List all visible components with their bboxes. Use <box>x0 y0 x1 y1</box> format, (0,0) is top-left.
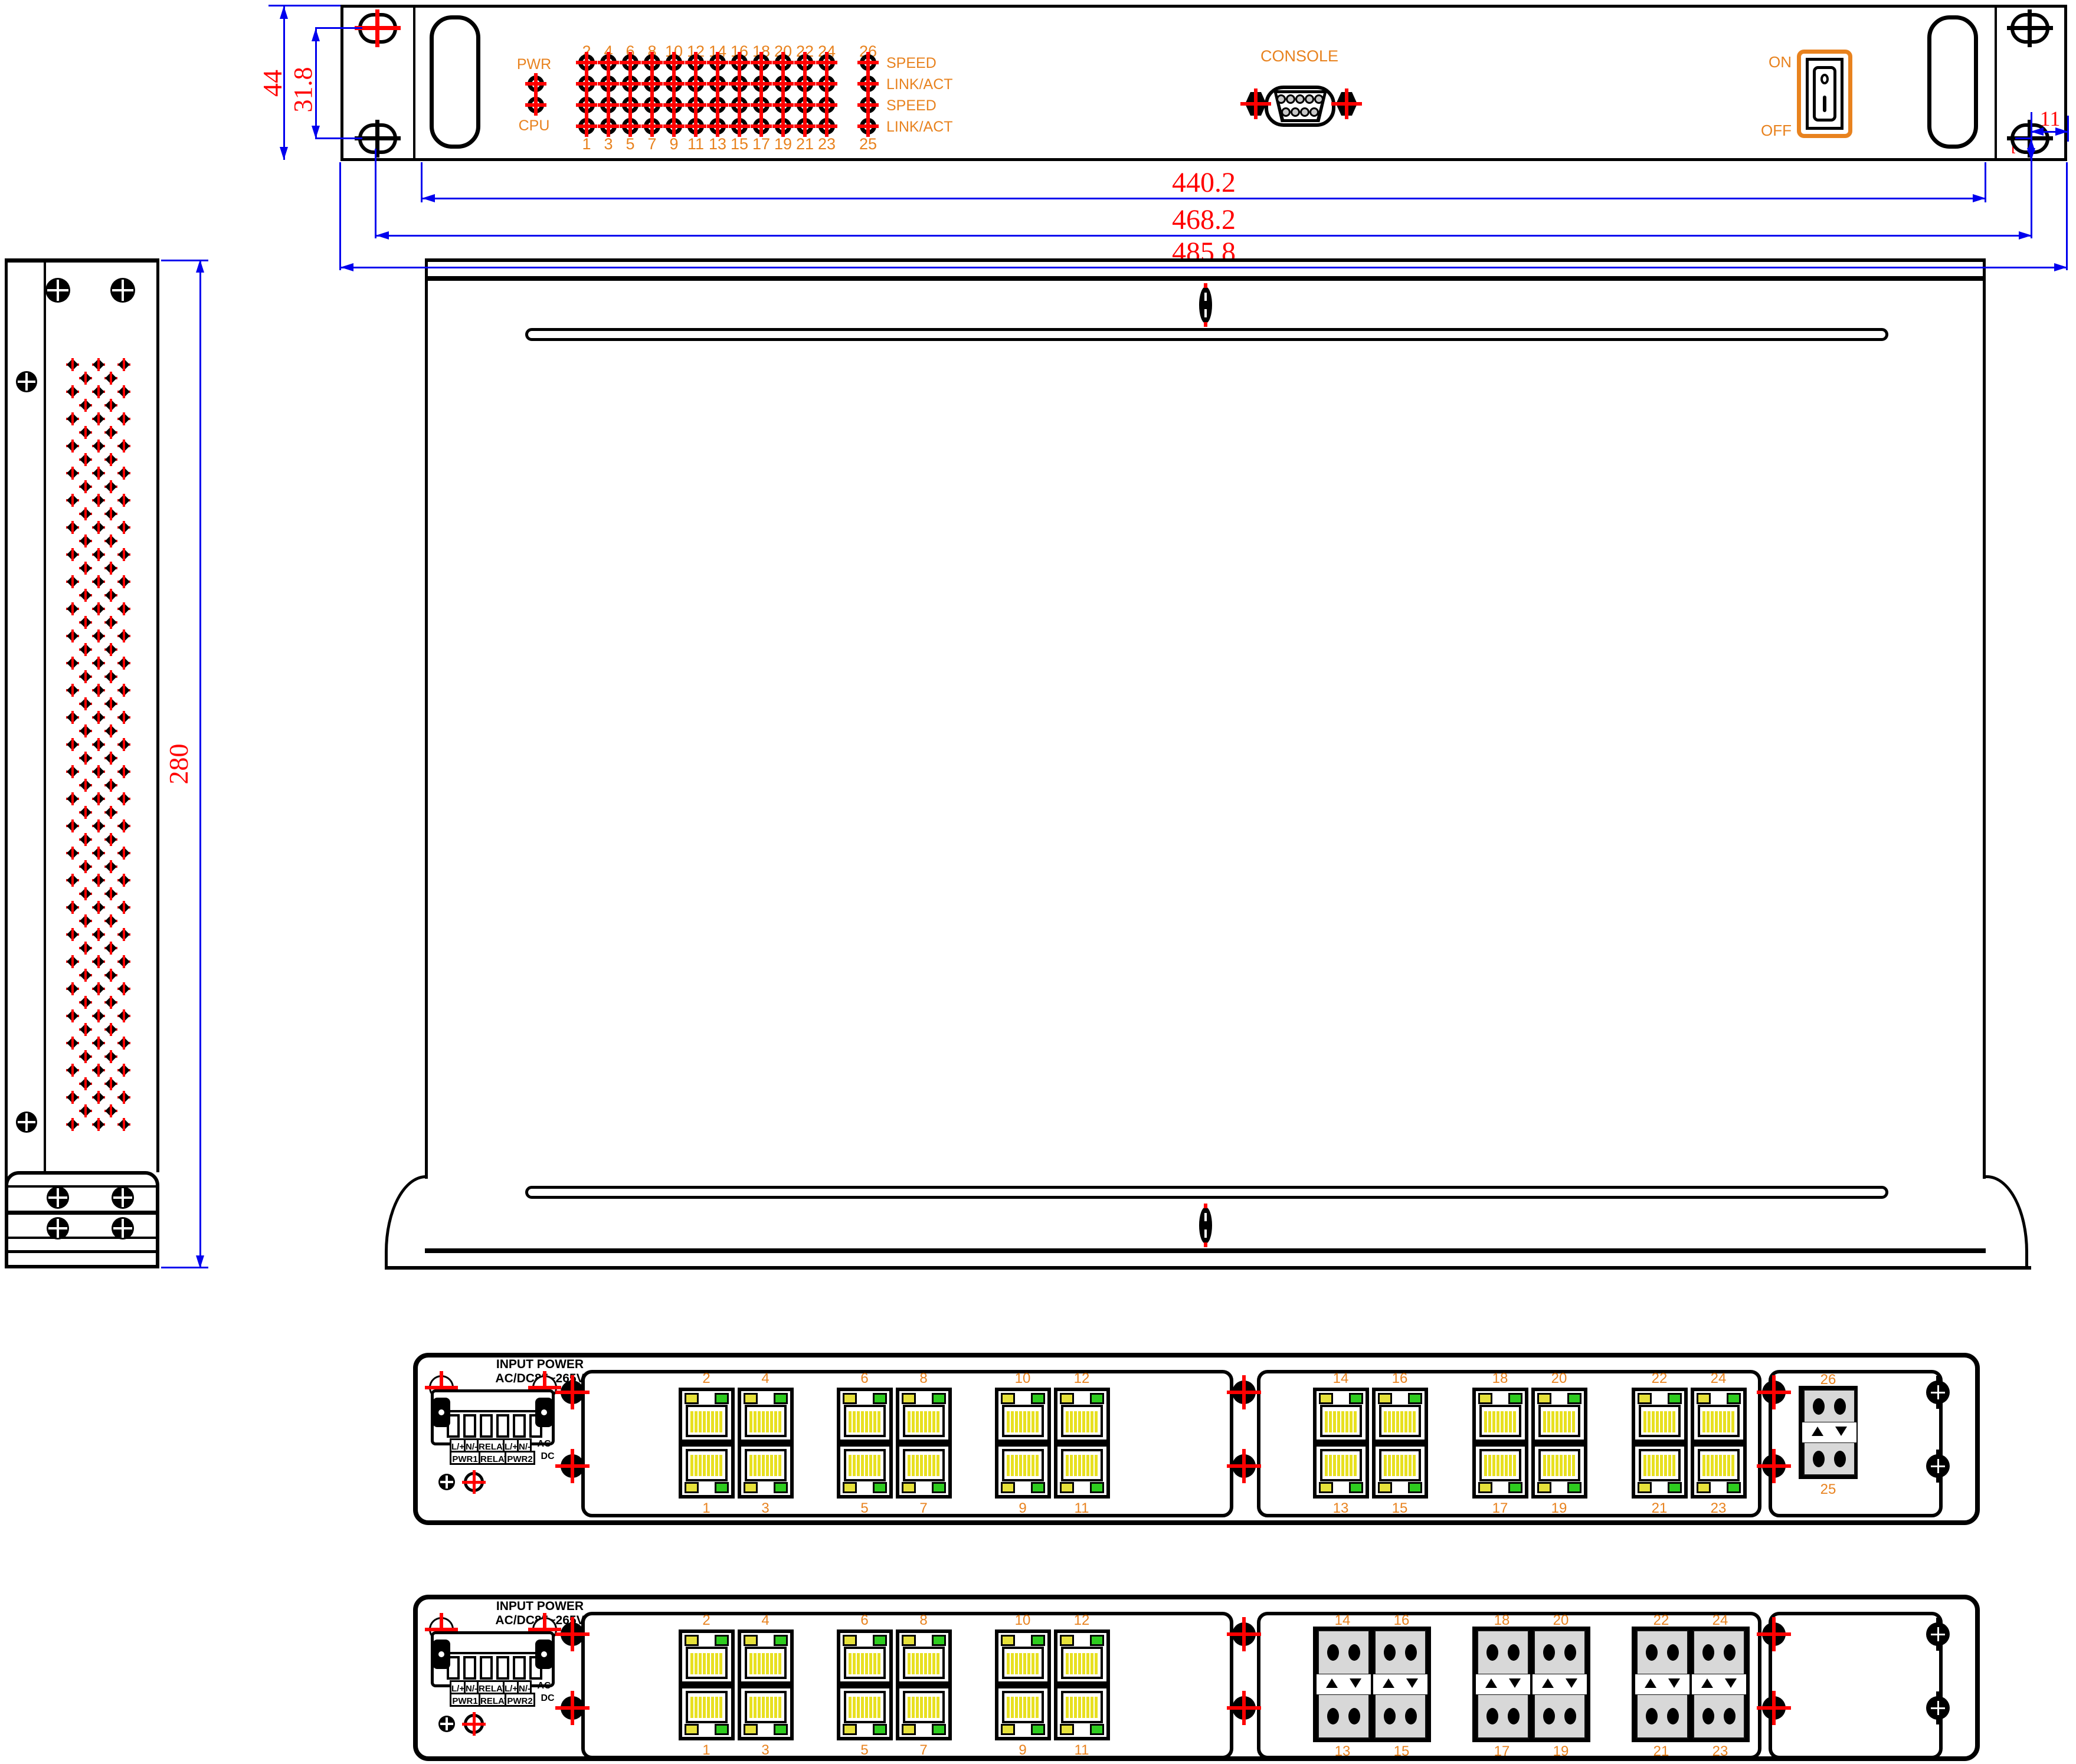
dimension-line <box>2066 162 2068 270</box>
led-yellow <box>1001 1724 1015 1735</box>
vent-diamond <box>93 657 104 669</box>
chassis-ear <box>385 1175 427 1267</box>
vent-diamond <box>67 467 78 479</box>
rj45-port <box>679 1685 735 1740</box>
switch-on-label: ON <box>1735 53 1792 71</box>
port-pin <box>869 1653 872 1674</box>
led-indicator <box>666 54 682 71</box>
port25-label: 25 <box>853 135 883 153</box>
rj45-port <box>738 1443 794 1499</box>
led-green <box>1349 1482 1363 1493</box>
terminal-tab <box>433 1640 450 1669</box>
port-pin <box>1656 1455 1659 1476</box>
port-pin <box>766 1455 769 1476</box>
vent-hole <box>79 1050 92 1063</box>
led-green <box>873 1635 887 1646</box>
vent-diamond <box>93 1091 104 1103</box>
port-plate <box>1769 1612 1943 1759</box>
structure-line <box>413 5 415 161</box>
port-pin <box>1082 1697 1085 1718</box>
port-pin <box>1019 1455 1022 1476</box>
port-pin <box>1707 1411 1710 1432</box>
screw-cross <box>555 1464 590 1468</box>
structure-line <box>425 1248 1986 1253</box>
vent-hole <box>117 738 130 751</box>
port-pin <box>1066 1411 1069 1432</box>
port-pin <box>1086 1697 1089 1718</box>
port-pin <box>762 1697 765 1718</box>
port-pin <box>1513 1411 1516 1432</box>
port-pin <box>1668 1411 1671 1432</box>
screw-icon <box>1232 1381 1256 1404</box>
vent-hole <box>66 928 79 941</box>
screw-icon <box>1232 1622 1256 1646</box>
vent-hole <box>92 982 105 995</box>
screw-icon <box>112 1186 134 1209</box>
led-indicator <box>753 54 770 71</box>
port-pin <box>1501 1411 1504 1432</box>
port-pin <box>861 1697 864 1718</box>
port-pin <box>762 1411 765 1432</box>
led-green <box>1727 1393 1741 1404</box>
port-pin <box>695 1697 698 1718</box>
vent-diamond <box>80 1051 91 1063</box>
port-pin <box>1509 1411 1512 1432</box>
latch-triangle-down <box>1406 1678 1418 1688</box>
port-pin <box>1702 1455 1705 1476</box>
rj45-port <box>995 1629 1051 1685</box>
fiber-hole <box>1486 1708 1498 1724</box>
port-pin <box>715 1697 718 1718</box>
port-pin <box>1572 1411 1575 1432</box>
fiber-module <box>1313 1627 1431 1742</box>
screw-cross <box>555 1706 590 1710</box>
port-number-label: 23 <box>815 135 839 153</box>
led-yellow <box>1319 1393 1333 1404</box>
vent-diamond <box>105 969 117 981</box>
port-pin <box>1711 1411 1714 1432</box>
vent-diamond <box>105 1024 117 1035</box>
screw-slot <box>1204 309 1207 317</box>
vent-diamond <box>105 861 117 873</box>
port-pin <box>937 1653 939 1674</box>
vent-hole <box>104 752 117 765</box>
port-pin <box>1036 1411 1039 1432</box>
screw-cross <box>555 1632 590 1636</box>
port-pin <box>690 1411 693 1432</box>
port-pin <box>1091 1653 1093 1674</box>
port-pin <box>1392 1455 1395 1476</box>
vent-diamond <box>80 942 91 954</box>
led-indicator <box>528 97 544 113</box>
port-pin <box>877 1455 880 1476</box>
led-yellow <box>1537 1393 1551 1404</box>
port-pin <box>1568 1455 1571 1476</box>
port-pin <box>873 1411 876 1432</box>
vent-hole <box>104 670 117 683</box>
vent-diamond <box>118 820 130 832</box>
vent-hole <box>79 860 92 873</box>
vent-hole <box>92 765 105 778</box>
vent-hole <box>79 1077 92 1090</box>
terminal-screw <box>480 1414 493 1438</box>
vent-hole <box>104 779 117 792</box>
rj45-port <box>1472 1443 1528 1499</box>
vent-hole <box>104 507 117 520</box>
port-pin <box>916 1455 919 1476</box>
port-pin <box>1074 1653 1077 1674</box>
vent-hole <box>79 399 92 412</box>
port-pin <box>1660 1411 1663 1432</box>
port-number-label: 13 <box>1325 1743 1360 1759</box>
fiber-port <box>1693 1630 1745 1675</box>
led-green <box>1727 1482 1741 1493</box>
port-number-label: 13 <box>706 135 729 153</box>
port-number-label: 4 <box>748 1612 783 1628</box>
port-pin <box>1492 1455 1495 1476</box>
vent-diamond <box>118 874 130 886</box>
vent-diamond <box>80 834 91 845</box>
vent-hole <box>117 440 130 453</box>
vent-diamond <box>93 630 104 642</box>
port-pin <box>928 1653 931 1674</box>
port-pin <box>749 1697 752 1718</box>
port-pin <box>1388 1455 1391 1476</box>
vent-hole <box>117 711 130 724</box>
vent-diamond <box>80 779 91 791</box>
vent-hole <box>66 1064 79 1077</box>
screw-icon <box>2010 13 2049 44</box>
tab-hole <box>541 1651 547 1657</box>
led-indicator <box>644 118 660 135</box>
port-pin <box>1497 1455 1499 1476</box>
port-pin <box>916 1697 919 1718</box>
dim-body-width: 440.2 <box>1126 166 1282 199</box>
fiber-hole <box>1348 1708 1360 1724</box>
vent-diamond <box>105 427 117 438</box>
port-pin <box>707 1411 710 1432</box>
vent-hole <box>66 711 79 724</box>
screw-icon <box>438 1474 455 1490</box>
dim-bracket-hole-spacing: 31.8 <box>290 51 316 128</box>
vent-hole <box>117 1009 130 1022</box>
vent-diamond <box>105 888 117 900</box>
screw-icon <box>110 278 135 303</box>
port-number-label: 6 <box>847 1612 882 1628</box>
vent-diamond <box>118 1037 130 1049</box>
vent-hole <box>66 982 79 995</box>
screw-icon <box>561 1622 584 1646</box>
led-green <box>1090 1393 1104 1404</box>
port-pin <box>719 1411 722 1432</box>
port-pin <box>1719 1411 1722 1432</box>
vent-hole <box>66 684 79 697</box>
port-pin <box>869 1411 872 1432</box>
led-green <box>1090 1482 1104 1493</box>
rj45-port <box>896 1443 952 1499</box>
led-green <box>932 1724 946 1735</box>
vent-hole <box>117 684 130 697</box>
port-pin <box>1413 1411 1416 1432</box>
screw-slot <box>48 1227 67 1229</box>
led-indicator <box>644 54 660 71</box>
vent-diamond <box>118 522 130 533</box>
handle-slot-right <box>1927 15 1978 149</box>
port-pin <box>920 1653 923 1674</box>
vent-hole <box>92 602 105 615</box>
vent-hole <box>92 901 105 914</box>
vent-diamond <box>80 698 91 710</box>
rj45-port <box>679 1443 735 1499</box>
port-pin <box>1384 1411 1387 1432</box>
port-pin <box>699 1653 702 1674</box>
dimension-arrow <box>340 263 353 271</box>
fiber-port <box>1534 1694 1586 1739</box>
vent-diamond <box>80 752 91 764</box>
port-pin <box>1413 1455 1416 1476</box>
structure-line <box>5 258 8 1268</box>
port-pin <box>1015 1411 1018 1432</box>
port-pin <box>1509 1455 1512 1476</box>
led-indicator <box>731 97 748 113</box>
led-indicator <box>860 118 876 135</box>
led-green <box>715 1393 729 1404</box>
port-pin <box>758 1697 761 1718</box>
led-green <box>932 1635 946 1646</box>
port-pin <box>1078 1697 1081 1718</box>
port-pin <box>1564 1455 1567 1476</box>
led-yellow <box>1001 1635 1015 1646</box>
port-pin <box>1074 1411 1077 1432</box>
vent-hole <box>79 887 92 900</box>
fiber-port <box>1374 1694 1426 1739</box>
fiber-latch <box>1317 1674 1371 1694</box>
tab-hole <box>541 1409 547 1415</box>
power-terminal-label: AC <box>532 1680 556 1691</box>
led-indicator <box>797 118 813 135</box>
fiber-hole <box>1543 1708 1555 1724</box>
screw-cross <box>462 1481 486 1484</box>
screw-icon <box>1926 1622 1950 1646</box>
port-pin <box>1354 1455 1357 1476</box>
power-terminal-label: PWR2 <box>505 1693 535 1707</box>
structure-line <box>156 263 159 1172</box>
vent-hole <box>117 1118 130 1131</box>
port-number-label: 14 <box>1323 1370 1358 1386</box>
port-pin <box>1086 1411 1089 1432</box>
port-pin <box>749 1455 752 1476</box>
latch-triangle-up <box>1542 1678 1554 1688</box>
vent-diamond <box>67 983 78 995</box>
port-pin <box>928 1411 931 1432</box>
dimension-arrow <box>376 231 389 240</box>
fiber-module <box>1472 1627 1590 1742</box>
console-pin-hole <box>1295 94 1305 104</box>
screw-icon <box>438 1716 455 1732</box>
screw-cross <box>1757 1464 1791 1468</box>
port-number-label: 15 <box>728 135 751 153</box>
port-pin <box>695 1455 698 1476</box>
vent-hole <box>66 385 79 398</box>
fiber-hole <box>1405 1708 1417 1724</box>
fiber-port <box>1318 1694 1370 1739</box>
port-pin <box>1731 1455 1734 1476</box>
port-pin <box>754 1653 757 1674</box>
vent-diamond <box>67 739 78 750</box>
fiber-hole <box>1327 1708 1339 1724</box>
port-pin <box>711 1653 714 1674</box>
port-pin <box>908 1411 911 1432</box>
port-pin <box>1015 1653 1018 1674</box>
vent-hole <box>104 562 117 575</box>
led-green <box>774 1482 788 1493</box>
port-pin <box>1007 1455 1010 1476</box>
vent-diamond <box>67 413 78 425</box>
vent-hole <box>92 358 105 371</box>
port-pin <box>1345 1455 1348 1476</box>
port-number-label: 22 <box>1642 1370 1677 1386</box>
port-pin <box>1329 1411 1332 1432</box>
led-row-label-linkact-1: LINK/ACT <box>886 76 953 93</box>
led-green <box>715 1724 729 1735</box>
port-pin <box>1488 1411 1491 1432</box>
vent-diamond <box>67 576 78 588</box>
port-number-label: 19 <box>1543 1743 1579 1759</box>
port-pin <box>1404 1455 1407 1476</box>
port-pin <box>1086 1455 1089 1476</box>
vent-hole <box>117 819 130 832</box>
led-green <box>1031 1724 1045 1735</box>
vent-diamond <box>118 1010 130 1022</box>
console-pin-hole <box>1291 107 1300 117</box>
led-yellow <box>843 1724 857 1735</box>
terminal-screw <box>463 1414 476 1438</box>
port-pin <box>1560 1455 1563 1476</box>
led-yellow <box>1319 1482 1333 1493</box>
vent-hole <box>117 412 130 425</box>
fiber-port <box>1318 1630 1370 1675</box>
led-yellow <box>1060 1393 1074 1404</box>
fiber-latch <box>1802 1422 1856 1442</box>
port-number-label: 13 <box>1323 1500 1358 1516</box>
port-pin <box>695 1411 698 1432</box>
vent-diamond <box>67 603 78 615</box>
port-pin <box>1070 1411 1073 1432</box>
latch-triangle-down <box>1835 1427 1847 1436</box>
vent-diamond <box>105 481 117 493</box>
vent-diamond <box>105 399 117 411</box>
port-pin <box>1723 1455 1726 1476</box>
vent-hole <box>66 1037 79 1050</box>
port-pin <box>857 1697 860 1718</box>
led-yellow <box>685 1724 699 1735</box>
port-pin <box>1652 1411 1655 1432</box>
led-indicator <box>753 97 770 113</box>
screw-cross <box>1757 1706 1791 1710</box>
dimension-arrow <box>312 28 320 41</box>
port-pin <box>1668 1455 1671 1476</box>
structure-line <box>425 258 1986 262</box>
vent-diamond <box>105 454 117 465</box>
led-yellow <box>1697 1393 1711 1404</box>
vent-diamond <box>105 725 117 737</box>
vent-diamond <box>93 901 104 913</box>
vent-hole <box>79 724 92 737</box>
dimension-line <box>161 1267 208 1268</box>
port-pin <box>1723 1411 1726 1432</box>
terminal-screw <box>463 1656 476 1680</box>
led-green <box>1031 1393 1045 1404</box>
latch-triangle-up <box>1701 1678 1713 1688</box>
vent-hole <box>104 480 117 493</box>
console-pin-hole <box>1300 107 1309 117</box>
vent-hole <box>104 1104 117 1117</box>
port-pin <box>1333 1411 1336 1432</box>
dimension-line <box>2067 116 2069 142</box>
led-indicator <box>578 76 595 92</box>
port-pin <box>1007 1697 1010 1718</box>
port-number-label: 7 <box>906 1742 941 1758</box>
screw-icon <box>47 1217 69 1240</box>
port-number-label: 18 <box>1484 1612 1520 1628</box>
led-yellow <box>1060 1482 1074 1493</box>
led-green <box>932 1393 946 1404</box>
vent-hole <box>79 1104 92 1117</box>
vent-hole <box>104 833 117 846</box>
vent-hole <box>66 1118 79 1131</box>
vent-hole <box>104 996 117 1009</box>
port-pin <box>1027 1411 1030 1432</box>
vent-hole <box>92 467 105 480</box>
screw-icon <box>1762 1454 1786 1478</box>
vent-diamond <box>93 494 104 506</box>
rj45-port <box>1632 1443 1688 1499</box>
rj45-port <box>837 1629 893 1685</box>
port-pin <box>861 1411 864 1432</box>
port-pin <box>1091 1455 1093 1476</box>
vent-diamond <box>105 698 117 710</box>
port-pin <box>1095 1411 1098 1432</box>
port-pin <box>920 1697 923 1718</box>
led-yellow <box>1478 1482 1492 1493</box>
port-pin <box>912 1697 915 1718</box>
vent-diamond <box>67 386 78 398</box>
vent-diamond <box>93 766 104 778</box>
vent-diamond <box>118 766 130 778</box>
port-pin <box>762 1455 765 1476</box>
port-number-label: 9 <box>1005 1500 1040 1516</box>
terminal-line <box>433 1410 552 1412</box>
vent-diamond <box>80 671 91 683</box>
vent-diamond <box>93 1037 104 1049</box>
screw-cross <box>1757 1391 1791 1394</box>
port-pin <box>1011 1697 1014 1718</box>
dimension-line <box>2015 137 2032 139</box>
vent-diamond <box>67 1064 78 1076</box>
port-pin <box>699 1411 702 1432</box>
port-number-label: 3 <box>748 1742 783 1758</box>
port-pin <box>770 1653 773 1674</box>
led-yellow <box>685 1635 699 1646</box>
port-pin <box>912 1411 915 1432</box>
fiber-hole <box>1508 1644 1520 1661</box>
port-number-label: 2 <box>689 1612 724 1628</box>
port-pin <box>695 1653 698 1674</box>
dimension-line <box>2031 149 2032 238</box>
led-indicator <box>731 54 748 71</box>
screw-icon <box>1232 1696 1256 1720</box>
vent-diamond <box>93 956 104 968</box>
